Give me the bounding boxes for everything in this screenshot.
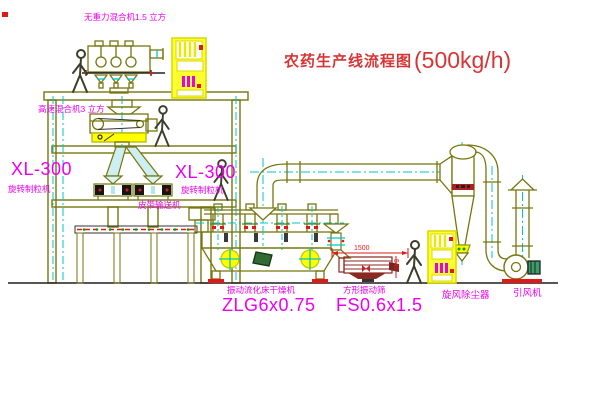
label-granulator-left-name: 旋转制粒机	[8, 185, 51, 194]
label-belt-conveyor: 皮带输送机	[138, 201, 181, 210]
rotary-granulators	[94, 176, 172, 200]
label-screen-name: 方形振动筛	[343, 286, 386, 295]
label-high-speed-mixer: 高速混合机3 立方	[38, 105, 105, 114]
process-flow-drawing: 农药生产线流程图 (500kg/h) 无重力混合机1.5 立方 高速混合机3 立…	[0, 0, 600, 403]
label-granulator-mid-model: XL-300	[175, 163, 236, 181]
corner-mark	[2, 12, 8, 17]
label-gravity-free-mixer: 无重力混合机1.5 立方	[84, 13, 166, 22]
control-cabinet-top	[172, 38, 206, 98]
label-granulator-left-model: XL-300	[11, 160, 72, 178]
dim-screen-height: 545	[392, 259, 399, 271]
fan-and-stack	[483, 166, 542, 283]
title-text: 农药生产线流程图	[284, 50, 412, 71]
y-split-chute	[106, 147, 159, 176]
dim-screen-length: 1500	[354, 245, 370, 252]
title-capacity: (500kg/h)	[414, 47, 511, 74]
belt-conveyor	[75, 226, 197, 283]
label-screen-model: FS0.6x1.5	[336, 296, 423, 314]
control-cabinet-right	[428, 231, 456, 283]
exhaust-duct	[250, 158, 452, 246]
label-cyclone: 旋风除尘器	[442, 291, 490, 301]
label-fan: 引风机	[513, 289, 542, 299]
label-dryer-name: 振动流化床干燥机	[227, 286, 295, 295]
label-granulator-mid-name: 旋转制粒机	[181, 186, 224, 195]
label-dryer-model: ZLG6x0.75	[222, 296, 316, 314]
gravity-free-mixer	[82, 41, 165, 93]
drawing-title: 农药生产线流程图 (500kg/h)	[284, 47, 511, 74]
